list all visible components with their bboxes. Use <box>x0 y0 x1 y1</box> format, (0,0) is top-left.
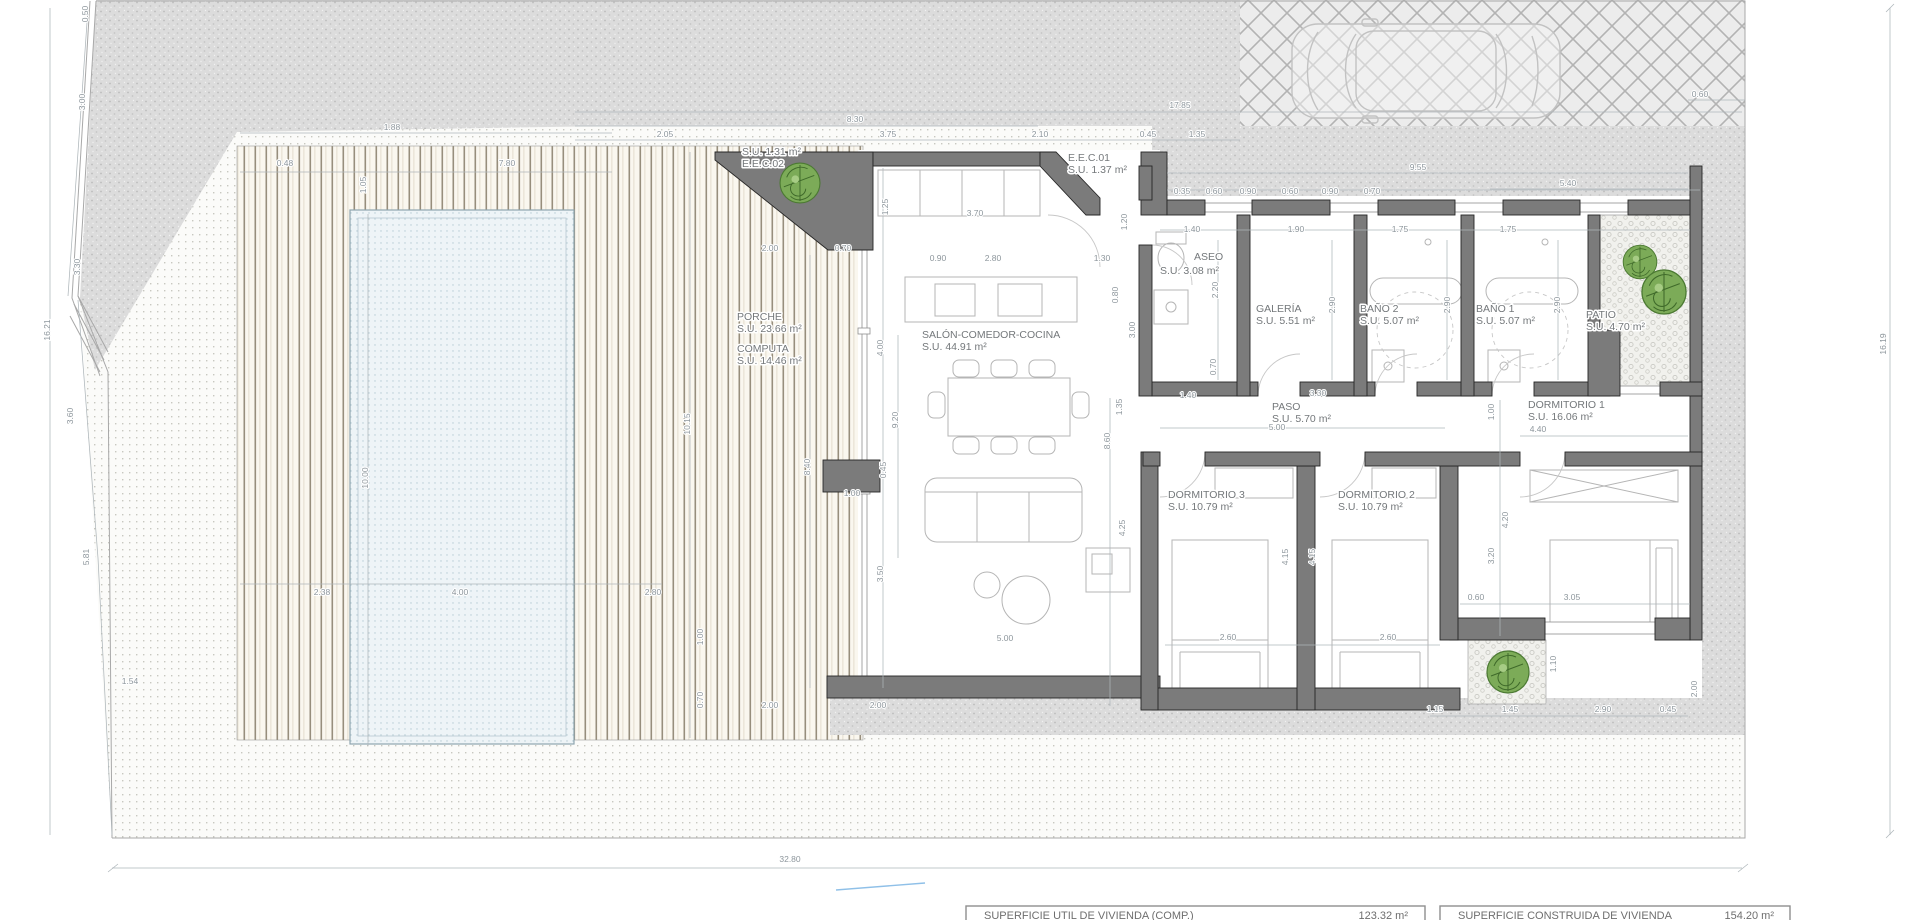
dimension-label: 1.10 <box>1548 655 1558 672</box>
dimension-label: 1.20 <box>1119 213 1129 230</box>
dimension-label: 1.75 <box>1500 224 1517 234</box>
dimension-label: 17.85 <box>1169 100 1191 110</box>
dimension-label: 4.00 <box>452 587 469 597</box>
dimension-label: 2.20 <box>1210 281 1220 298</box>
dimension-label: 0.48 <box>277 158 294 168</box>
dimension-label: 5.40 <box>1560 178 1577 188</box>
tree-icon <box>1642 270 1686 314</box>
dimension-label: 4.15 <box>1280 548 1290 565</box>
dimension-label: 1.05 <box>358 176 368 193</box>
dimension-label: 4.00 <box>875 339 885 356</box>
bed <box>1172 540 1268 698</box>
dimension-label: 16.21 <box>42 319 52 341</box>
dimension-label: 2.80 <box>645 587 662 597</box>
tree-icon <box>780 163 820 203</box>
dimension-label: 3.50 <box>875 565 885 582</box>
sofa <box>925 478 1082 542</box>
dimension-label: 1.25 <box>880 198 890 215</box>
dimension-label: 4.15 <box>1307 548 1317 565</box>
dimension-label: 10.00 <box>360 467 370 489</box>
dimension-label: 3.60 <box>65 407 75 424</box>
built-area-value: 154.20 m² <box>1724 910 1774 920</box>
dimension-label: 2.00 <box>762 700 779 710</box>
dimension-label: 1.45 <box>1502 704 1519 714</box>
dimension-label: 2.90 <box>1595 704 1612 714</box>
dimension-label: 1.35 <box>1189 129 1206 139</box>
dimension-label: 0.60 <box>1282 186 1299 196</box>
dimension-label: 1.90 <box>1288 224 1305 234</box>
dimension-label: 8.60 <box>1102 432 1112 449</box>
dimension-label: 1.30 <box>1094 253 1111 263</box>
dimension-label: 7.80 <box>499 158 516 168</box>
dimension-label: 0.70 <box>835 243 852 253</box>
dimension-label: 1.75 <box>1392 224 1409 234</box>
dimension-label: 8.30 <box>847 114 864 124</box>
dimension-label: 1.40 <box>1180 390 1197 400</box>
window <box>1545 622 1655 634</box>
dimension-label: 0.80 <box>1110 286 1120 303</box>
dimension-label: 3.75 <box>880 129 897 139</box>
areas-table: SUPERFICIE UTIL DE VIVIENDA (COMP.) 123.… <box>966 906 1790 920</box>
dimension-label: 2.60 <box>1220 632 1237 642</box>
dimension-label: 0.45 <box>878 461 888 478</box>
dimension-label: 3.70 <box>967 208 984 218</box>
dimension-label: 32.80 <box>779 854 801 864</box>
car-icon <box>1292 19 1560 123</box>
dimension-label: 3.00 <box>1127 321 1137 338</box>
dimension-label: 2.00 <box>1689 680 1699 697</box>
dimension-label: 0.60 <box>1468 592 1485 602</box>
dimension-label: 5.00 <box>997 633 1014 643</box>
dimension-label: 1.15 <box>1427 704 1444 714</box>
dimension-label: 2.90 <box>1442 296 1452 313</box>
dimension-label: 2.05 <box>657 129 674 139</box>
dimension-label: 1.00 <box>695 628 705 645</box>
bed <box>1332 540 1428 698</box>
dimension-label: 0.60 <box>1692 89 1709 99</box>
dimension-label: 1.35 <box>1114 398 1124 415</box>
dimension-label: 1.88 <box>384 122 401 132</box>
dimension-label: 2.00 <box>870 700 887 710</box>
dimension-label: 0.70 <box>1208 358 1218 375</box>
dimension-label: 0.90 <box>1240 186 1257 196</box>
dimension-label: 2.60 <box>1380 632 1397 642</box>
dimension-label: 10.15 <box>682 413 692 435</box>
floor-plan: 0.503.003.3016.213.605.811.5432.8016.191… <box>0 0 1920 920</box>
dimension-label: 4.25 <box>1117 519 1127 536</box>
dimension-label: 9.20 <box>890 411 900 428</box>
dimension-label: 1.40 <box>1184 224 1201 234</box>
dimension-label: 1.00 <box>844 488 861 498</box>
misc-blue-line <box>836 883 925 890</box>
useful-area-label: SUPERFICIE UTIL DE VIVIENDA (COMP.) <box>984 910 1194 920</box>
dimension-label: 0.70 <box>695 691 705 708</box>
dimension-label: 2.90 <box>1327 296 1337 313</box>
dimension-label: 3.30 <box>72 258 82 275</box>
dimension-label: 4.40 <box>1530 424 1547 434</box>
dimension-label: 16.19 <box>1878 333 1888 355</box>
dimension-label: 4.20 <box>1500 511 1510 528</box>
useful-area-value: 123.32 m² <box>1358 910 1408 920</box>
dimension-label: 3.30 <box>1310 388 1327 398</box>
room-label: S.U. 3.08 m² <box>1160 265 1219 277</box>
dimension-label: 1.54 <box>122 676 139 686</box>
dimension-label: 0.90 <box>1322 186 1339 196</box>
dimension-label: 1.00 <box>1486 403 1496 420</box>
dining-table <box>948 378 1070 436</box>
dimension-label: 0.60 <box>1206 186 1223 196</box>
dimension-label: 2.90 <box>1552 296 1562 313</box>
dimension-label: 3.20 <box>1486 547 1496 564</box>
dimension-label: 5.81 <box>81 548 91 565</box>
dimension-label: 0.45 <box>1140 129 1157 139</box>
swimming-pool <box>350 210 574 744</box>
dimension-label: 0.90 <box>930 253 947 263</box>
dimension-label: 2.80 <box>985 253 1002 263</box>
dimension-label: 3.05 <box>1564 592 1581 602</box>
dimension-label: 0.35 <box>1174 186 1191 196</box>
dimension-label: 0.50 <box>80 5 90 22</box>
dimension-label: 0.45 <box>1660 704 1677 714</box>
tree-icon <box>1487 651 1529 693</box>
built-area-label: SUPERFICIE CONSTRUIDA DE VIVIENDA <box>1458 910 1673 920</box>
dimension-label: 2.00 <box>762 243 779 253</box>
dimension-label: 2.38 <box>314 587 331 597</box>
bed <box>1550 540 1678 628</box>
dimension-label: 3.00 <box>77 93 87 110</box>
dimension-label: 0.70 <box>1364 186 1381 196</box>
dimension-label: 9.55 <box>1410 162 1427 172</box>
dimension-label: 2.10 <box>1032 129 1049 139</box>
room-label: ASEO <box>1194 251 1223 263</box>
dimension-label: 8.40 <box>802 458 812 475</box>
